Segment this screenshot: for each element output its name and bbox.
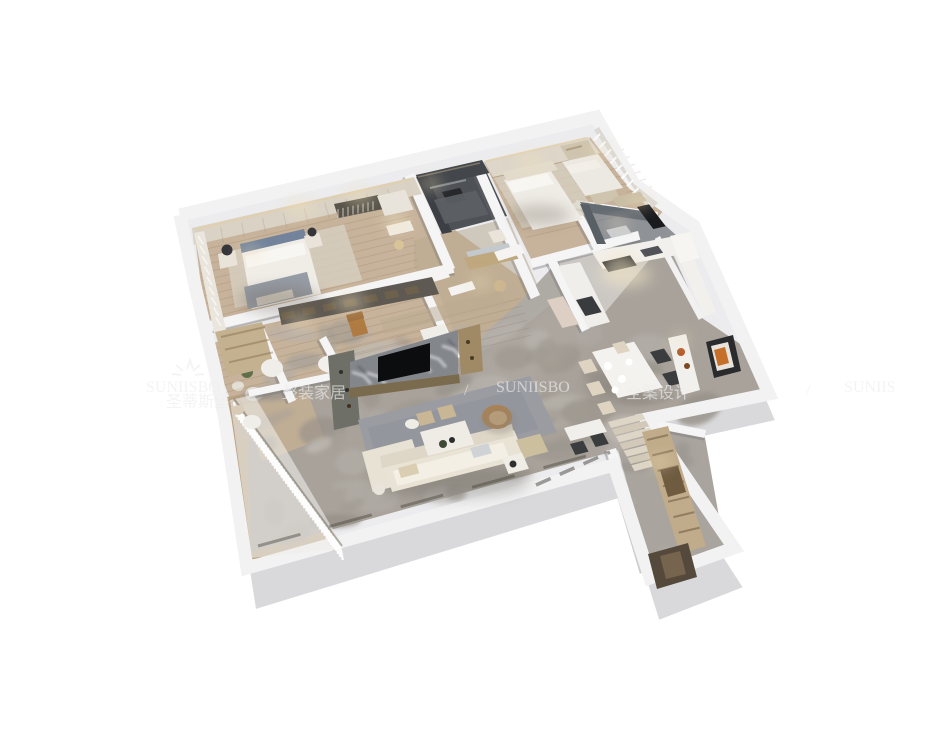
- svg-text:整装家居: 整装家居: [282, 384, 346, 402]
- svg-text:圣蒂斯堡: 圣蒂斯堡: [166, 393, 230, 411]
- svg-text:/: /: [806, 382, 811, 399]
- svg-text:SUNIISBO: SUNIISBO: [496, 379, 570, 396]
- svg-text:全案设计: 全案设计: [626, 384, 690, 402]
- svg-text:SUNIIS: SUNIIS: [844, 379, 896, 396]
- svg-text:/: /: [464, 382, 469, 399]
